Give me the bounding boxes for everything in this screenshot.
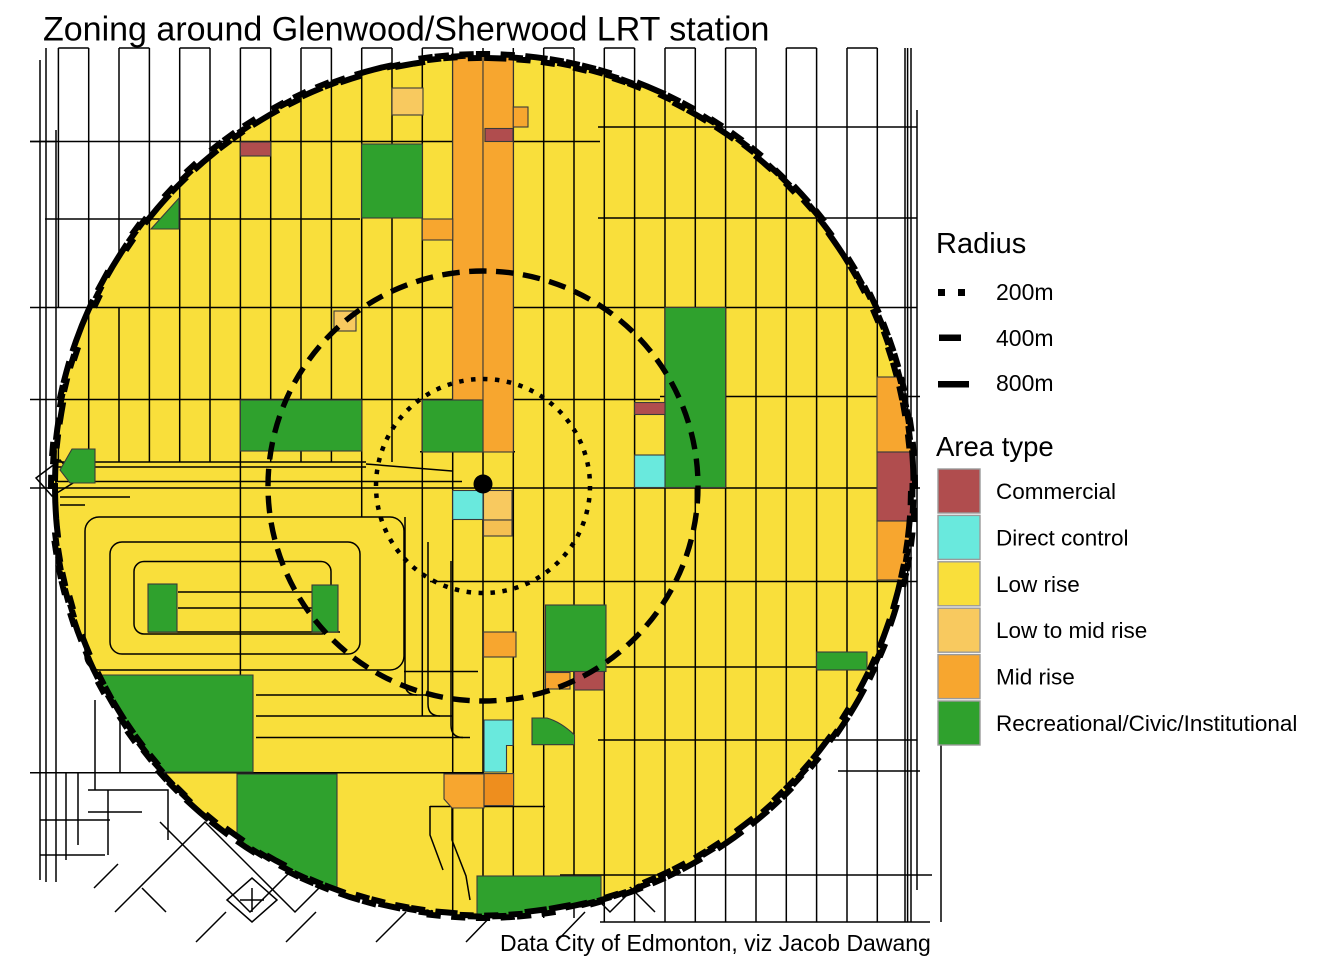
svg-text:800m: 800m [996, 370, 1054, 396]
svg-text:Radius: Radius [936, 228, 1026, 260]
svg-text:Area type: Area type [936, 431, 1054, 462]
svg-text:Data City of Edmonton, viz Jac: Data City of Edmonton, viz Jacob Dawang [500, 930, 931, 956]
svg-text:Zoning around Glenwood/Sherwoo: Zoning around Glenwood/Sherwood LRT stat… [43, 11, 769, 49]
svg-text:200m: 200m [996, 279, 1054, 305]
svg-text:Commercial: Commercial [996, 479, 1116, 504]
svg-text:Direct control: Direct control [996, 525, 1129, 550]
svg-text:Mid rise: Mid rise [996, 665, 1075, 690]
svg-text:Recreational/Civic/Institution: Recreational/Civic/Institutional [996, 711, 1297, 736]
svg-text:400m: 400m [996, 325, 1054, 351]
svg-text:Low to mid rise: Low to mid rise [996, 618, 1147, 643]
svg-text:Low rise: Low rise [996, 572, 1080, 597]
